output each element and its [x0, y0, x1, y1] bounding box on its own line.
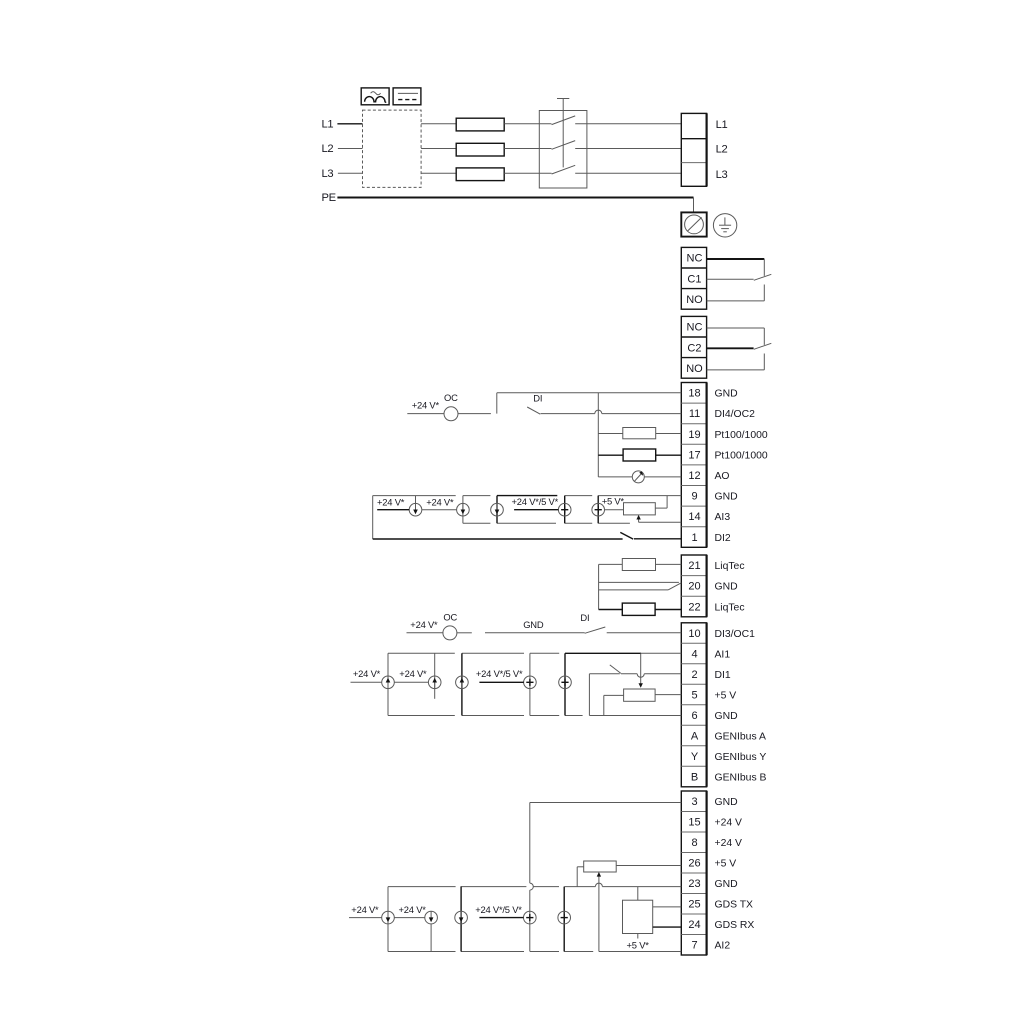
- svg-text:23: 23: [688, 878, 700, 890]
- svg-text:NC: NC: [687, 253, 703, 265]
- svg-text:+24 V: +24 V: [715, 838, 743, 849]
- svg-text:GND: GND: [523, 619, 544, 630]
- svg-text:+24 V*: +24 V*: [412, 399, 440, 410]
- svg-text:L2: L2: [716, 144, 728, 156]
- svg-text:3: 3: [691, 796, 697, 808]
- svg-text:NO: NO: [686, 363, 703, 375]
- svg-text:17: 17: [688, 449, 700, 461]
- svg-text:L3: L3: [716, 169, 728, 181]
- svg-text:+24 V*/5 V*: +24 V*/5 V*: [476, 668, 523, 679]
- svg-text:L2: L2: [322, 143, 334, 155]
- svg-text:DI: DI: [533, 392, 542, 403]
- svg-text:OC: OC: [444, 392, 458, 403]
- svg-text:DI3/OC1: DI3/OC1: [715, 629, 756, 640]
- svg-text:2: 2: [691, 669, 697, 681]
- svg-text:GND: GND: [715, 492, 738, 503]
- svg-text:8: 8: [691, 837, 697, 849]
- svg-text:Pt100/1000: Pt100/1000: [715, 450, 768, 461]
- svg-text:DI4/OC2: DI4/OC2: [715, 409, 756, 420]
- svg-text:C1: C1: [687, 273, 701, 285]
- svg-text:7: 7: [691, 940, 697, 952]
- svg-text:GENIbus A: GENIbus A: [715, 731, 766, 742]
- svg-text:NC: NC: [687, 322, 703, 334]
- svg-text:10: 10: [688, 628, 700, 640]
- svg-text:DI2: DI2: [715, 533, 731, 544]
- svg-text:12: 12: [688, 470, 700, 482]
- svg-text:LiqTec: LiqTec: [715, 602, 745, 613]
- svg-text:+5 V*: +5 V*: [602, 496, 625, 507]
- svg-text:+24 V*: +24 V*: [353, 668, 381, 679]
- svg-text:+24 V*/5 V*: +24 V*/5 V*: [475, 904, 522, 915]
- svg-text:+5 V: +5 V: [715, 690, 737, 701]
- svg-text:9: 9: [691, 491, 697, 503]
- svg-text:AI2: AI2: [715, 941, 731, 952]
- svg-text:B: B: [691, 771, 698, 783]
- svg-text:C2: C2: [687, 342, 701, 354]
- svg-text:+24 V*: +24 V*: [399, 668, 427, 679]
- svg-text:15: 15: [688, 817, 700, 829]
- svg-text:GDS RX: GDS RX: [715, 920, 755, 931]
- svg-text:GND: GND: [715, 711, 738, 722]
- svg-text:GENIbus Y: GENIbus Y: [715, 752, 767, 763]
- svg-text:L1: L1: [322, 119, 334, 131]
- svg-text:GND: GND: [715, 797, 738, 808]
- svg-text:24: 24: [688, 919, 700, 931]
- svg-text:L3: L3: [322, 168, 334, 180]
- svg-text:AO: AO: [715, 471, 730, 482]
- svg-text:A: A: [691, 730, 699, 742]
- svg-text:AI1: AI1: [715, 649, 731, 660]
- svg-text:6: 6: [691, 710, 697, 722]
- svg-text:+24 V: +24 V: [715, 818, 743, 829]
- svg-text:GENIbus B: GENIbus B: [715, 772, 767, 783]
- svg-text:5: 5: [691, 689, 697, 701]
- svg-text:NO: NO: [686, 294, 703, 306]
- svg-text:14: 14: [688, 511, 700, 523]
- svg-text:11: 11: [689, 408, 700, 420]
- svg-text:19: 19: [688, 429, 700, 441]
- svg-text:+24 V*: +24 V*: [399, 904, 427, 915]
- svg-text:AI3: AI3: [715, 512, 731, 523]
- svg-text:+5 V: +5 V: [715, 859, 737, 870]
- svg-text:Pt100/1000: Pt100/1000: [715, 430, 768, 441]
- svg-text:GND: GND: [715, 582, 738, 593]
- svg-text:OC: OC: [443, 612, 457, 623]
- svg-text:+24 V*: +24 V*: [410, 619, 438, 630]
- svg-text:LiqTec: LiqTec: [715, 561, 745, 572]
- svg-text:+24 V*: +24 V*: [351, 904, 379, 915]
- svg-text:1: 1: [691, 532, 697, 544]
- svg-text:26: 26: [688, 858, 700, 870]
- svg-text:21: 21: [688, 560, 700, 572]
- svg-text:GND: GND: [715, 879, 738, 890]
- svg-text:+5 V*: +5 V*: [627, 939, 650, 950]
- svg-text:L1: L1: [716, 119, 728, 131]
- svg-text:DI: DI: [580, 612, 589, 623]
- svg-text:+24 V*/5 V*: +24 V*/5 V*: [512, 496, 559, 507]
- svg-text:18: 18: [688, 388, 700, 400]
- svg-text:+24 V*: +24 V*: [377, 496, 405, 507]
- svg-text:DI1: DI1: [715, 670, 731, 681]
- svg-text:+24 V*: +24 V*: [426, 496, 454, 507]
- svg-text:PE: PE: [322, 192, 336, 204]
- svg-text:4: 4: [691, 648, 697, 660]
- svg-text:GDS TX: GDS TX: [715, 900, 754, 911]
- svg-text:22: 22: [688, 601, 700, 613]
- svg-text:25: 25: [688, 899, 700, 911]
- svg-text:Y: Y: [691, 751, 699, 763]
- svg-text:20: 20: [688, 581, 700, 593]
- svg-text:GND: GND: [715, 389, 738, 400]
